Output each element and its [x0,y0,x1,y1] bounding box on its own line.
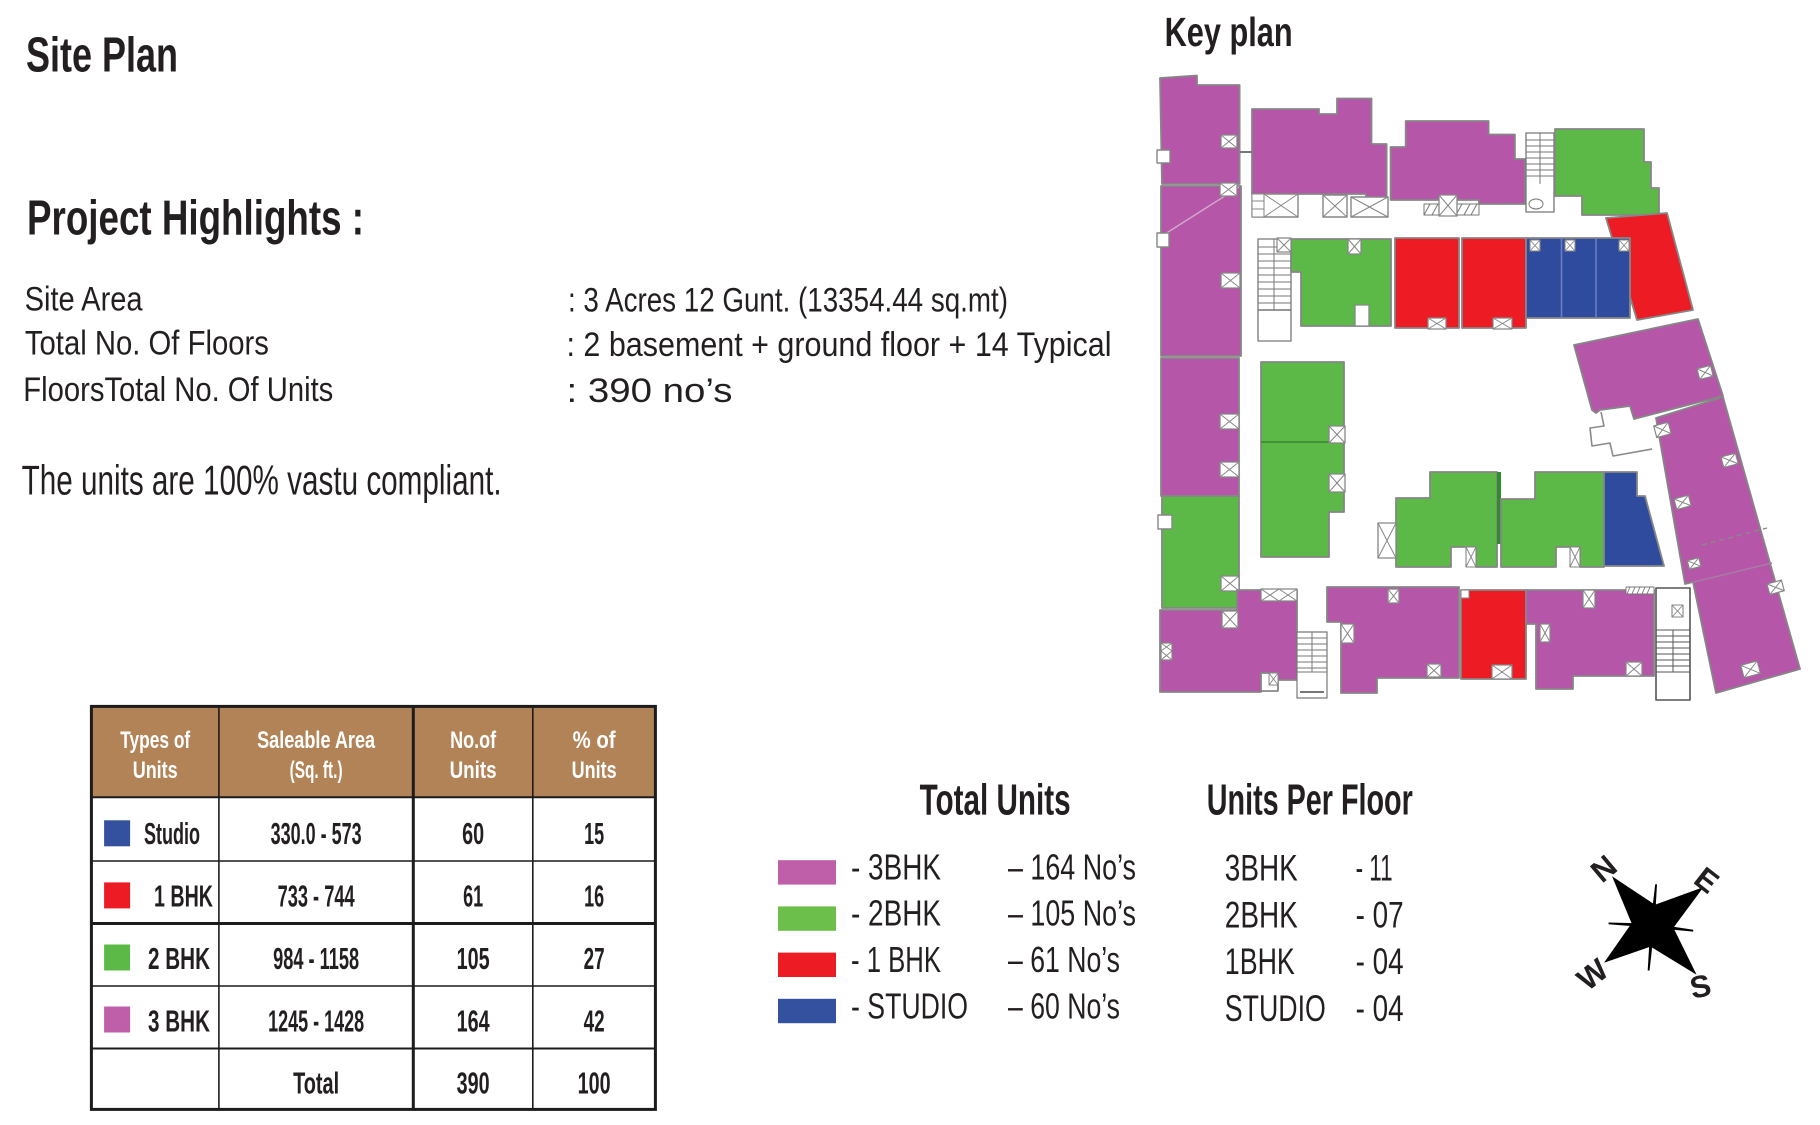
svg-text:Total No. Of Floors: Total No. Of Floors [25,325,269,363]
svg-text:733 - 744: 733 - 744 [278,879,355,914]
svg-text:- STUDIO: - STUDIO [851,986,968,1027]
svg-text:1BHK: 1BHK [1225,941,1295,982]
svg-text:: 3 Acres 12 Gunt. (13354.44 s: : 3 Acres 12 Gunt. (13354.44 sq.mt) [568,281,1008,319]
svg-text:3BHK: 3BHK [1225,847,1298,888]
svg-text:– 164 No’s: – 164 No’s [1008,846,1136,887]
svg-text:3 BHK: 3 BHK [148,1004,210,1039]
svg-text:- 04: - 04 [1356,941,1404,982]
svg-text:Project Highlights :: Project Highlights : [27,192,364,246]
svg-text:- 04: - 04 [1356,988,1404,1029]
svg-text:- 11: - 11 [1356,847,1393,888]
svg-text:Types of: Types of [120,727,191,754]
svg-text:% of: % of [573,727,617,754]
svg-text:105: 105 [457,941,490,976]
svg-text:2 BHK: 2 BHK [148,941,210,976]
svg-text:The units are 100% vastu compl: The units are 100% vastu compliant. [22,457,502,504]
svg-text:- 07: - 07 [1356,894,1404,935]
svg-text:2BHK: 2BHK [1225,894,1298,935]
svg-text:42: 42 [584,1004,605,1039]
svg-text:- 3BHK: - 3BHK [851,846,941,887]
svg-text:330.0 - 573: 330.0 - 573 [271,816,362,851]
svg-text:Site Plan: Site Plan [26,29,178,83]
svg-text:: 390 no’s: : 390 no’s [567,372,733,410]
svg-text:Key plan: Key plan [1165,9,1293,55]
svg-text:61: 61 [463,879,483,914]
svg-text:– 61 No’s: – 61 No’s [1008,939,1120,980]
svg-text:– 60 No’s: – 60 No’s [1008,986,1120,1027]
svg-text:15: 15 [584,816,604,851]
svg-text:No.of: No.of [450,727,497,754]
svg-text:- 1 BHK: - 1 BHK [851,939,941,980]
svg-text:(Sq. ft.): (Sq. ft.) [290,757,343,784]
svg-text:984 - 1158: 984 - 1158 [273,941,359,976]
svg-text:27: 27 [584,941,605,976]
svg-text:Units Per Floor: Units Per Floor [1207,776,1413,824]
svg-text:STUDIO: STUDIO [1225,988,1326,1029]
svg-text:Total Units: Total Units [920,776,1071,824]
svg-text:1245 - 1428: 1245 - 1428 [268,1004,364,1039]
svg-text:16: 16 [584,879,604,914]
svg-text:Units: Units [450,757,497,784]
svg-text:Units: Units [133,757,178,784]
svg-text:- 2BHK: - 2BHK [851,893,941,934]
svg-text:Total: Total [293,1065,339,1100]
svg-text:Studio: Studio [144,816,200,851]
svg-text:60: 60 [462,816,484,851]
svg-text:390: 390 [457,1065,490,1100]
svg-text:Saleable Area: Saleable Area [257,727,375,754]
svg-text:100: 100 [578,1065,611,1100]
svg-text:: 2 basement + ground floor +: : 2 basement + ground floor + 14 Typical [567,326,1112,364]
svg-text:FloorsTotal No. Of Units: FloorsTotal No. Of Units [23,371,333,409]
svg-text:1 BHK: 1 BHK [154,879,213,914]
svg-text:164: 164 [457,1004,490,1039]
svg-text:– 105 No’s: – 105 No’s [1008,893,1136,934]
svg-text:Site Area: Site Area [25,281,144,319]
svg-text:Units: Units [572,757,617,784]
